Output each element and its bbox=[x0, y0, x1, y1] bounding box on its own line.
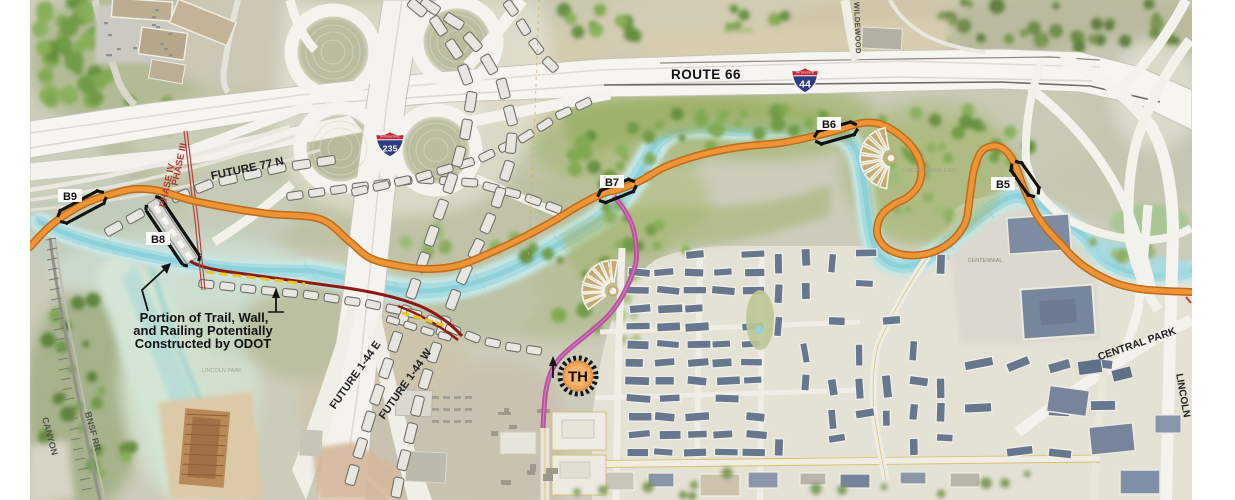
svg-text:ROUTE 66: ROUTE 66 bbox=[671, 67, 741, 82]
svg-text:235: 235 bbox=[383, 144, 398, 153]
svg-text:LINCOLN PARK EAST: LINCOLN PARK EAST bbox=[902, 168, 958, 174]
svg-text:B9: B9 bbox=[63, 191, 77, 203]
svg-text:B8: B8 bbox=[151, 234, 165, 246]
svg-text:INTERSTATE: INTERSTATE bbox=[796, 71, 814, 75]
svg-text:LINCOLN PARK: LINCOLN PARK bbox=[202, 368, 242, 374]
svg-text:B7: B7 bbox=[605, 177, 619, 189]
svg-text:WILDEWOOD: WILDEWOOD bbox=[852, 2, 863, 54]
svg-text:B5: B5 bbox=[996, 179, 1010, 191]
svg-text:44: 44 bbox=[799, 80, 811, 91]
svg-text:B6: B6 bbox=[822, 119, 836, 131]
svg-text:INTERSTATE: INTERSTATE bbox=[380, 135, 399, 139]
svg-text:Constructed by ODOT: Constructed by ODOT bbox=[135, 336, 272, 351]
svg-text:CENTENNIAL: CENTENNIAL bbox=[968, 258, 1003, 264]
svg-text:TH: TH bbox=[568, 369, 588, 386]
